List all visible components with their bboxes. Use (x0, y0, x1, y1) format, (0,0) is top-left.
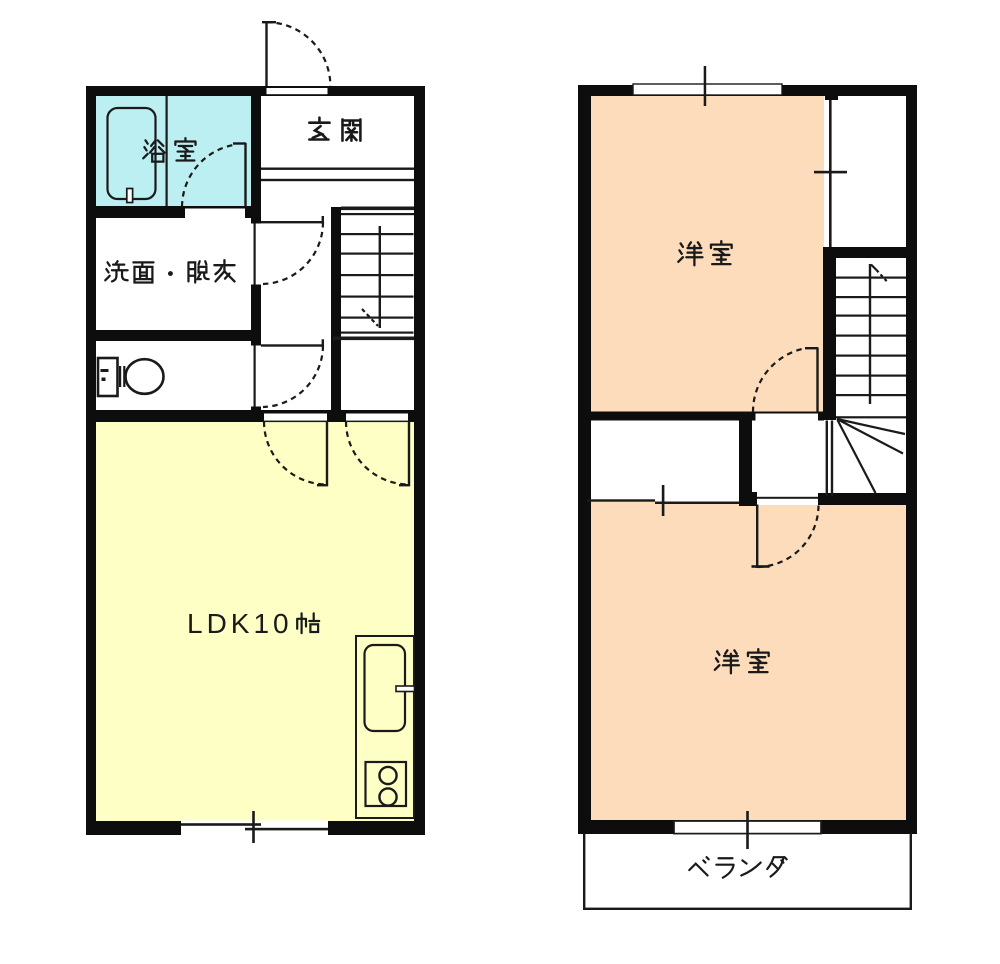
svg-text:LDK10: LDK10 (187, 608, 293, 639)
